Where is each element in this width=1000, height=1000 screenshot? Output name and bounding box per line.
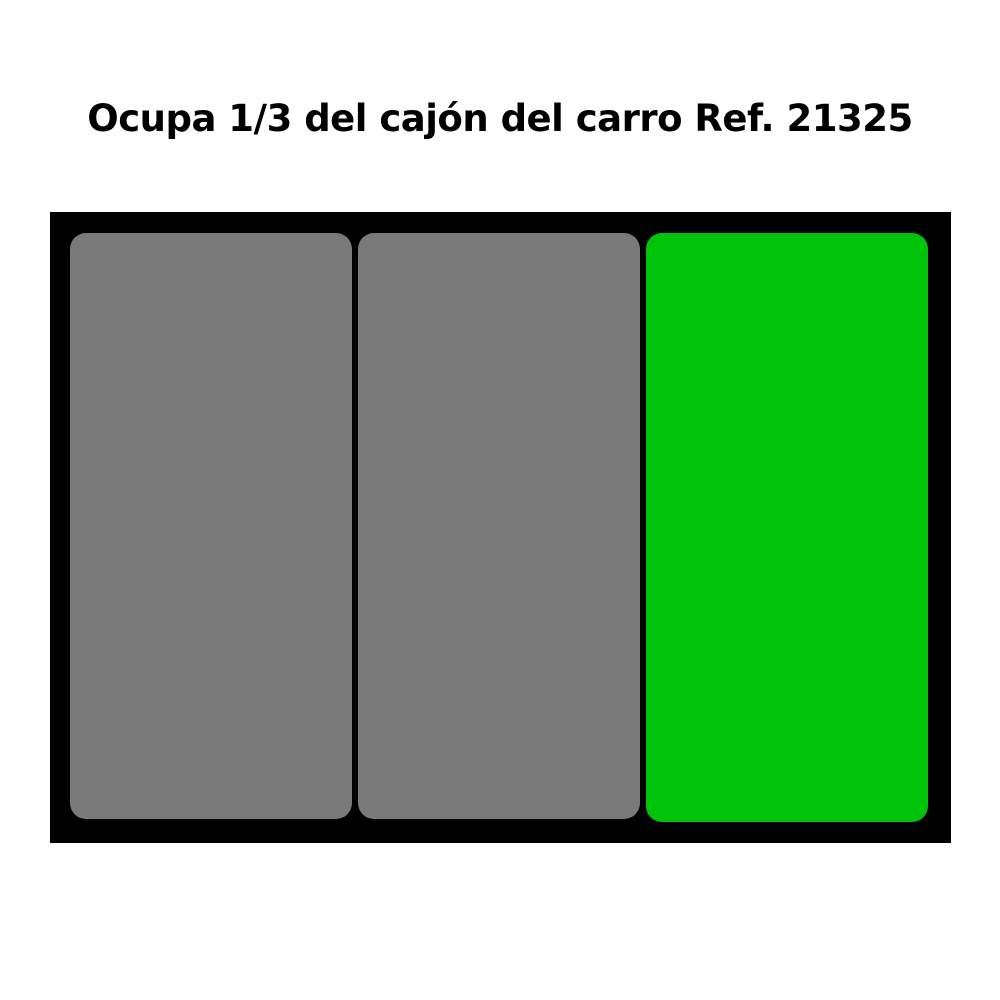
drawer-slot-3-highlighted <box>646 233 928 822</box>
drawer-slot-2 <box>358 233 640 819</box>
drawer-slot-1 <box>70 233 352 819</box>
infographic-canvas: Ocupa 1/3 del cajón del carro Ref. 21325 <box>0 0 1000 1000</box>
page-title: Ocupa 1/3 del cajón del carro Ref. 21325 <box>0 97 1000 141</box>
cart-drawer-frame <box>50 212 951 843</box>
